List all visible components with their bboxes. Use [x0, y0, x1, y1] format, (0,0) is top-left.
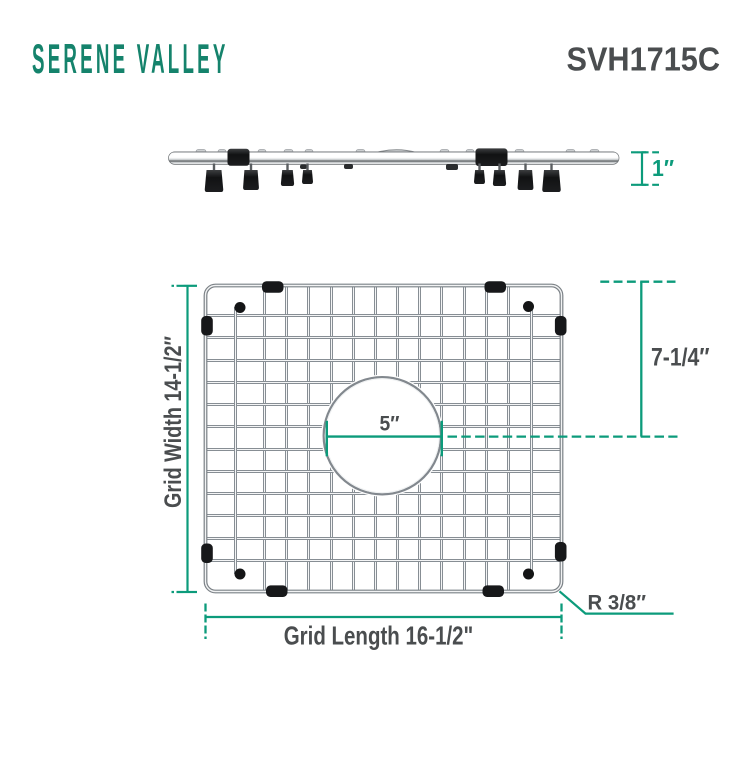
svg-text:7-1/4″: 7-1/4″	[651, 344, 710, 372]
svg-text:Grid Width 14-1/2″: Grid Width 14-1/2″	[160, 336, 187, 508]
svg-text:SVH1715C: SVH1715C	[567, 41, 721, 78]
svg-text:SERENE VALLEY: SERENE VALLEY	[32, 34, 226, 82]
svg-text:5″: 5″	[380, 411, 400, 435]
svg-text:Grid Length 16-1/2": Grid Length 16-1/2"	[284, 621, 474, 651]
svg-text:1″: 1″	[652, 155, 674, 181]
svg-text:R 3/8″: R 3/8″	[588, 592, 647, 615]
